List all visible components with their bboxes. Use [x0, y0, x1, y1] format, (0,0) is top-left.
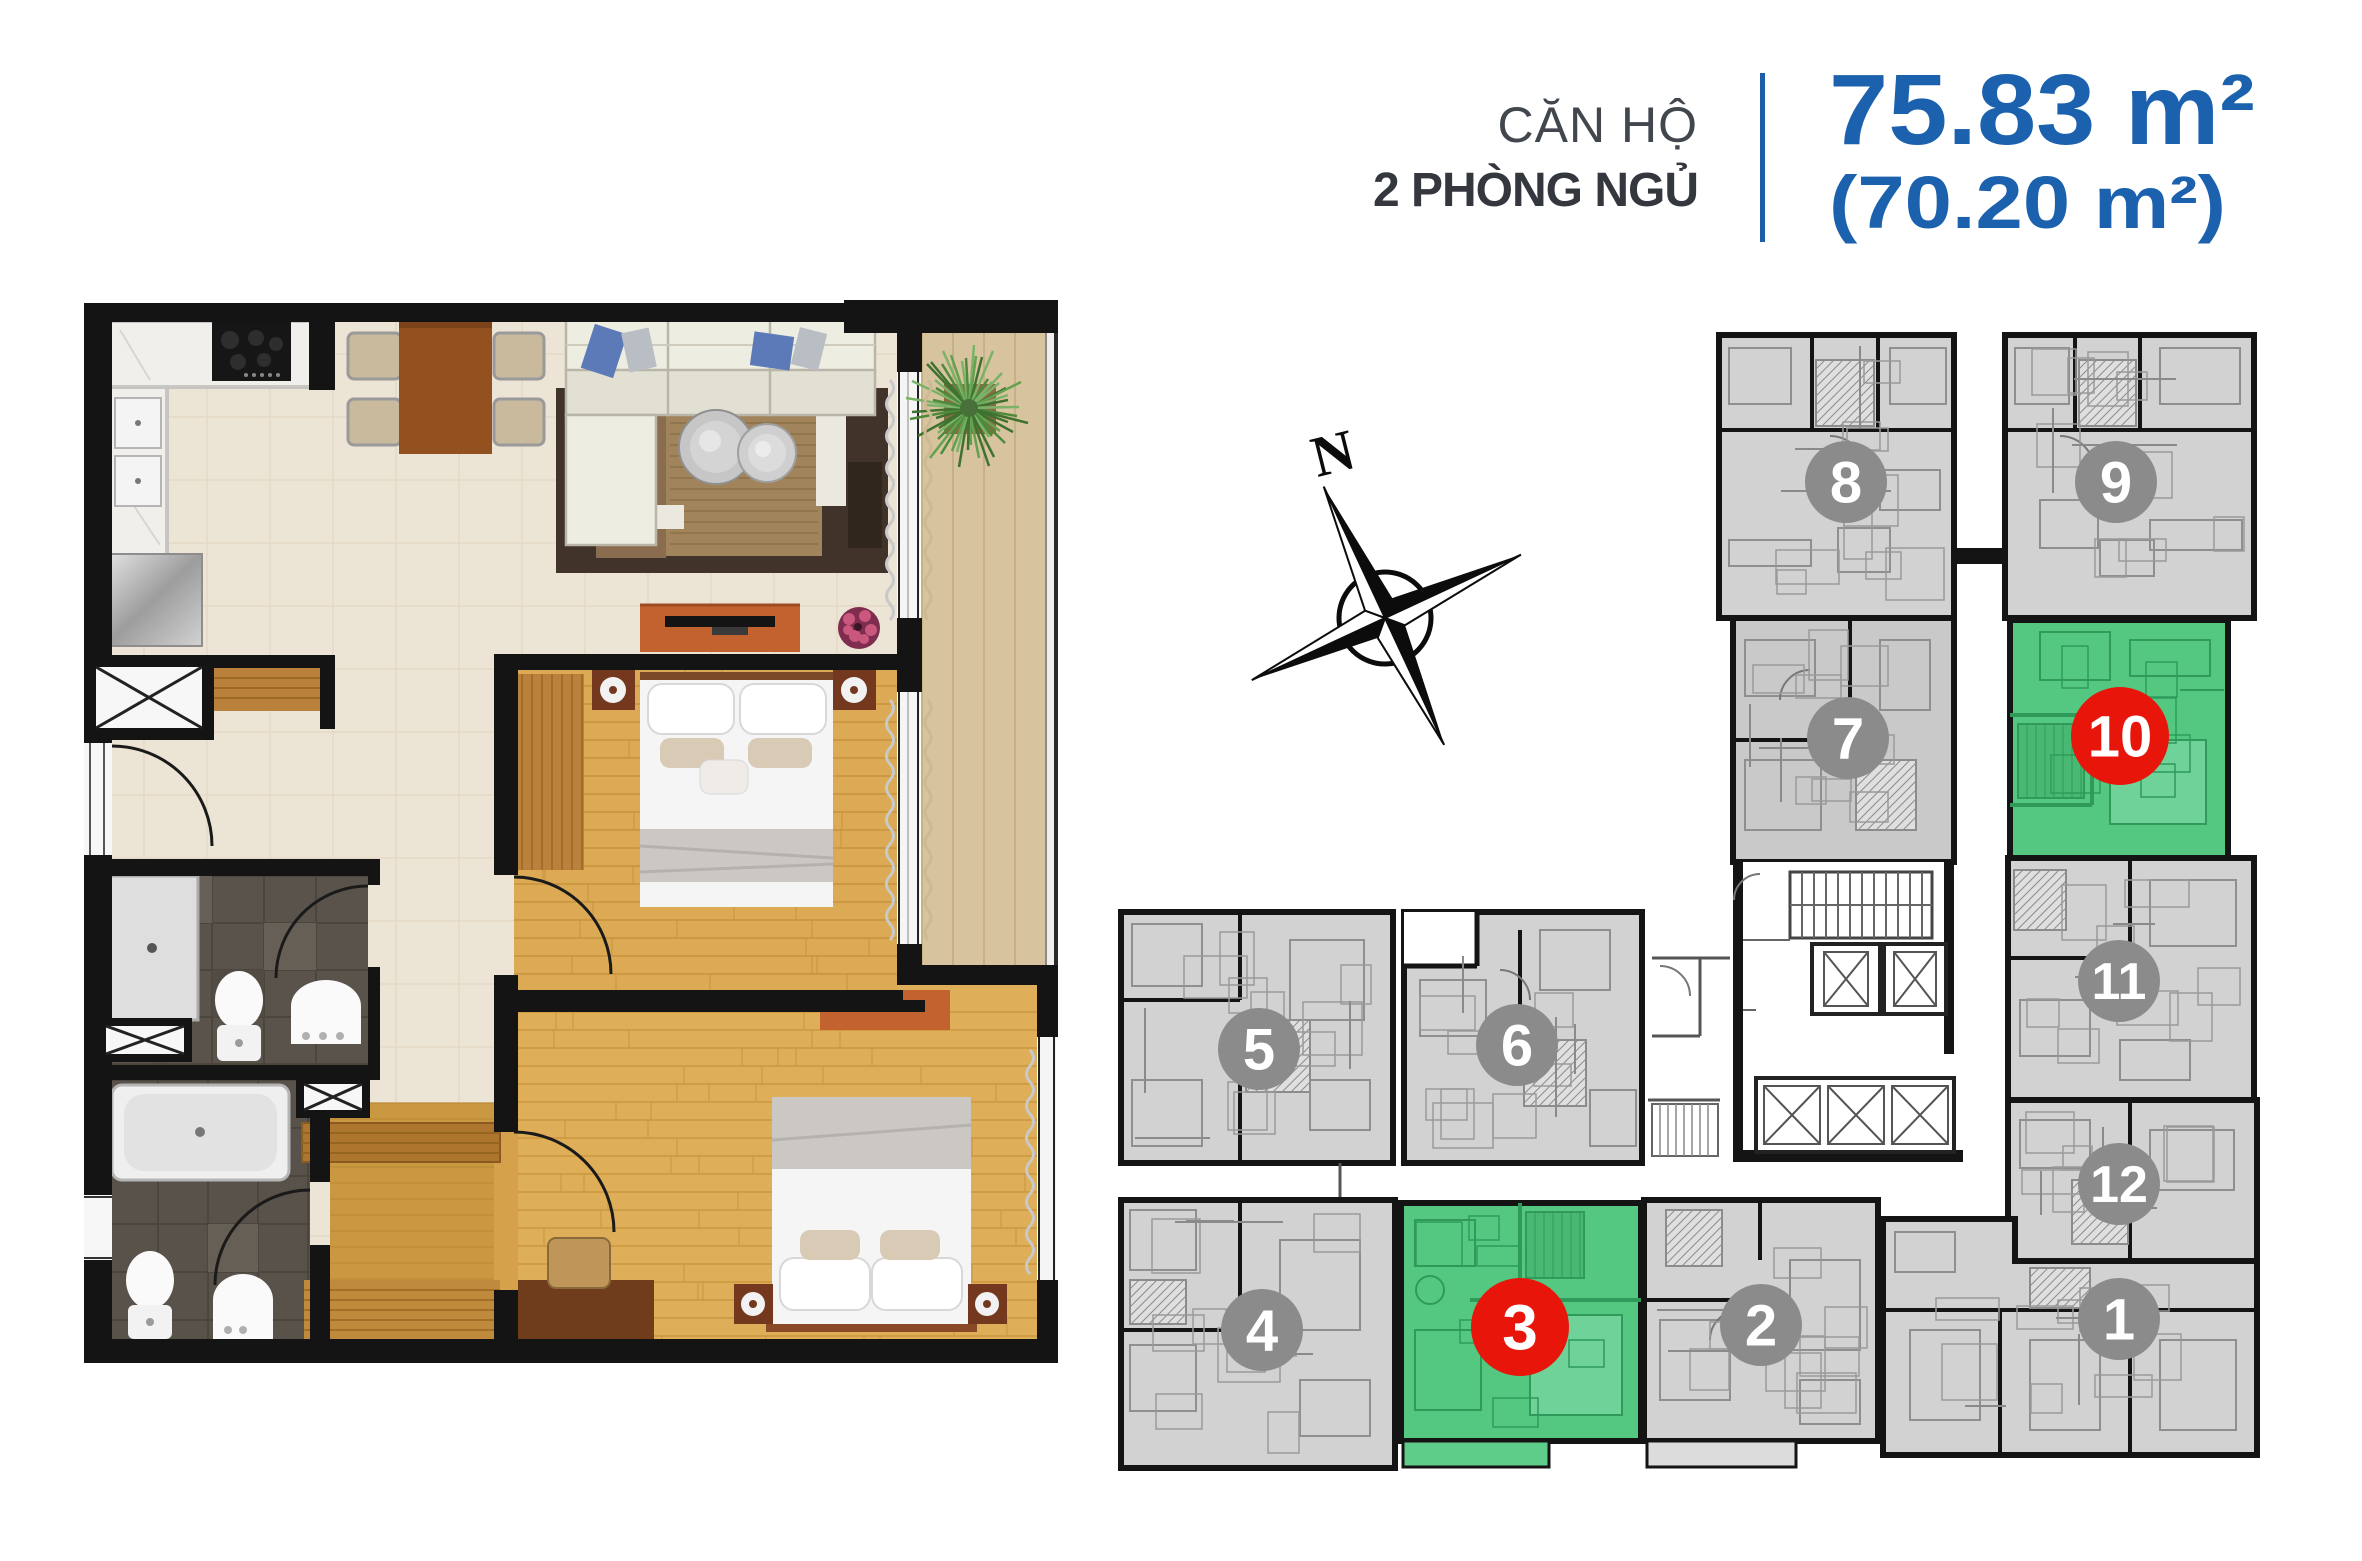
svg-text:12: 12 [2090, 1156, 2148, 1214]
svg-text:CĂN HỘ: CĂN HỘ [1498, 97, 1698, 153]
svg-text:6: 6 [1501, 1013, 1533, 1078]
svg-text:5: 5 [1243, 1017, 1275, 1082]
svg-text:3: 3 [1502, 1291, 1538, 1363]
svg-text:(70.20 m²): (70.20 m²) [1829, 161, 2226, 244]
svg-text:2 PHÒNG NGỦ: 2 PHÒNG NGỦ [1373, 162, 1698, 217]
svg-text:1: 1 [2103, 1287, 2135, 1352]
svg-text:7: 7 [1832, 706, 1864, 771]
svg-text:75.83 m²: 75.83 m² [1829, 54, 2255, 166]
svg-text:10: 10 [2088, 704, 2153, 769]
svg-text:8: 8 [1830, 450, 1862, 515]
svg-text:2: 2 [1745, 1293, 1777, 1358]
svg-text:4: 4 [1246, 1298, 1278, 1363]
svg-text:9: 9 [2100, 450, 2132, 515]
svg-text:11: 11 [2092, 953, 2147, 1011]
